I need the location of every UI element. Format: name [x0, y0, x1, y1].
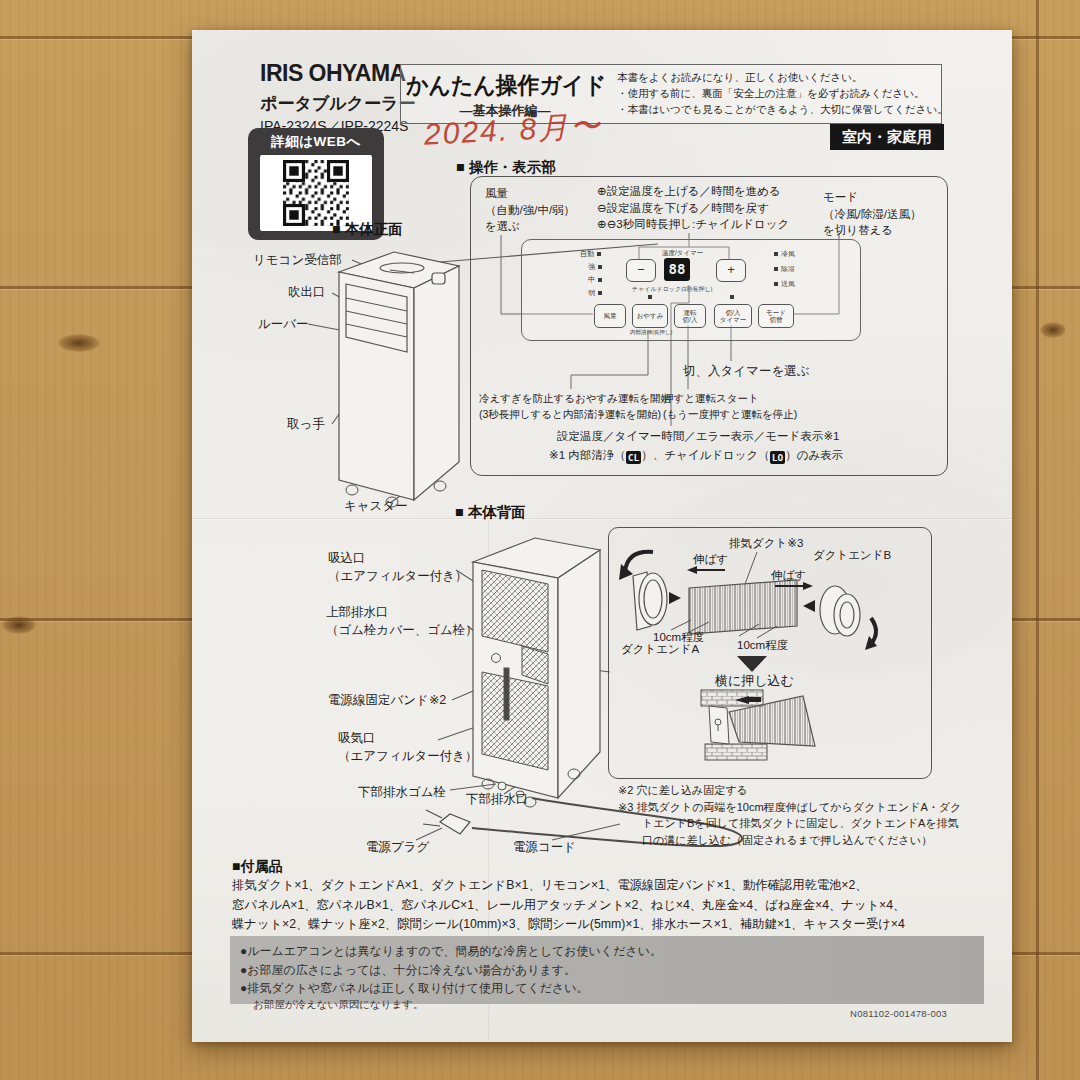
label-exhaust-duct: 排気ダクト※3: [729, 536, 803, 551]
accessories-section: ■付属品 排気ダクト×1、ダクトエンドA×1、ダクトエンドB×1、リモコン×1、…: [232, 858, 992, 935]
label-bottom-plug: 下部排水ゴム栓: [358, 784, 446, 802]
label-10cm-right: 10cm程度: [737, 638, 788, 653]
label-line: （ゴム栓カバー、ゴム栓）: [326, 622, 478, 640]
footnote-text: ）のみ表示: [785, 449, 843, 461]
accessories-line: 蝶ナット×2、蝶ナット座×2、隙間シール(10mm)×3、隙間シール(5mm)×…: [232, 915, 992, 935]
label-push-sideways: 横に押し込む: [715, 672, 794, 690]
indicator-label: 除湿: [781, 264, 795, 274]
document-code: N081102-001478-003: [850, 1008, 947, 1019]
temp-note-line: ⊖設定温度を下げる／時間を戻す: [597, 200, 789, 217]
caution-line: ●排気ダクトや窓パネルは正しく取り付けて使用してください。: [240, 979, 974, 998]
temp-note-line: ⊕設定温度を上げる／時間を進める: [597, 183, 789, 200]
footnote-3: ※3 排気ダクトの両端を10cm程度伸ばしてからダクトエンドA・ダクトエンドBを…: [618, 799, 962, 849]
lo-display-icon: LO: [770, 451, 785, 464]
label-remote-sensor: リモコン受信部: [253, 252, 342, 270]
indicator-dot-icon: [774, 267, 778, 271]
temperature-display: 88: [664, 258, 690, 281]
timer-button: 切/入タイマー: [714, 304, 752, 328]
label-line: （エアフィルター付き）: [328, 568, 468, 586]
mode-note-line: を切り替える: [823, 222, 921, 239]
power-note-line: 押すと運転スタート: [663, 391, 797, 407]
label-stretch-right: 伸ばす: [771, 568, 806, 583]
section-heading-back: ■ 本体背面: [455, 503, 526, 522]
wood-knot: [2, 616, 36, 634]
brand-block: IRIS OHYAMA ポータブルクーラー IPA-2324S／IPP-2224…: [260, 60, 415, 136]
footnotes-block: ※2 穴に差し込み固定する ※3 排気ダクトの両端を10cm程度伸ばしてからダク…: [618, 782, 962, 848]
qr-caption: 詳細はWEBへ: [248, 133, 384, 151]
fan-speed-note: 風量 （自動/強/中/弱） を選ぶ: [485, 185, 575, 235]
fan-note-line: を選ぶ: [485, 218, 575, 235]
indicator-label: 送風: [781, 279, 795, 289]
section-heading-front: ■ 本体正面: [332, 220, 403, 239]
label-intake: 吸気口 （エアフィルター付き）: [338, 730, 478, 765]
manual-sheet: IRIS OHYAMA ポータブルクーラー IPA-2324S／IPP-2224…: [192, 30, 1012, 1042]
label-bottom-drain: 下部排水口: [466, 791, 529, 809]
label-caster: キャスター: [344, 498, 408, 516]
label-cord-band: 電源線固定バンド※2: [328, 692, 446, 710]
wood-knot: [1040, 322, 1066, 338]
power-note-line: (もう一度押すと運転を停止): [663, 407, 797, 423]
label-power-plug: 電源プラグ: [366, 839, 429, 857]
guide-title: かんたん操作ガイド: [406, 70, 604, 101]
mode-button: モード切替: [758, 304, 794, 328]
floor-plank-joint: [1036, 0, 1039, 1080]
label-line: （エアフィルター付き）: [338, 748, 478, 766]
label-line: 上部排水口: [326, 604, 478, 622]
label-stretch-left: 伸ばす: [693, 552, 728, 567]
fan-note-line: （自動/強/中/弱）: [485, 202, 575, 219]
label-handle: 取っ手: [287, 416, 325, 434]
caution-box: ●ルームエアコンとは異なりますので、簡易的な冷房としてお使いください。 ●お部屋…: [230, 936, 984, 1004]
button-label: 切替: [759, 316, 793, 323]
timer-indicator-dot-icon: [730, 295, 734, 299]
section-heading-controls: ■ 操作・表示部: [456, 158, 556, 177]
caution-line: ●ルームエアコンとは異なりますので、簡易的な冷房としてお使いください。: [240, 942, 974, 961]
display-label: 温度/タイマー: [662, 249, 703, 258]
photo-of-manual-on-wood-floor: { "header": { "brand": "IRIS OHYAMA", "p…: [0, 0, 1080, 1080]
timer-select-note: 切、入タイマーを選ぶ: [683, 363, 809, 380]
mode-note-line: （冷風/除湿/送風）: [823, 206, 921, 223]
button-label: タイマー: [715, 316, 751, 323]
mode-note: モード （冷風/除湿/送風） を切り替える: [823, 189, 921, 239]
temp-buttons-note: ⊕設定温度を上げる／時間を進める ⊖設定温度を下げる／時間を戻す ⊕⊖3秒同時長…: [597, 183, 789, 233]
label-power-cord: 電源コード: [513, 839, 576, 857]
notice-line: ・使用する前に、裏面「安全上の注意」を必ずお読みください。: [617, 86, 948, 102]
label-top-drain: 上部排水口 （ゴム栓カバー、ゴム栓）: [326, 604, 478, 639]
indicator-dot-icon: [774, 252, 778, 256]
label-air-outlet: 吹出口: [288, 284, 326, 302]
label-duct-end-b: ダクトエンドB: [813, 548, 891, 563]
label-duct-end-a: ダクトエンドA: [621, 642, 699, 657]
brand-logo: IRIS OHYAMA: [260, 60, 415, 87]
duct-assembly-box: 排気ダクト※3 ダクトエンドB 伸ばす 伸ばす 10cm程度 10cm程度 ダク…: [608, 527, 932, 779]
indoor-use-badge: 室内・家庭用: [830, 124, 944, 150]
button-label: モード: [759, 309, 793, 316]
temp-note-line: ⊕⊖3秒同時長押し:チャイルドロック: [597, 216, 789, 233]
power-button: 運転切/入: [674, 304, 706, 328]
button-label: 切/入: [715, 309, 751, 316]
mode-indicator-dehumidify: 除湿: [774, 264, 795, 274]
label-line: 吸込口: [328, 550, 468, 568]
indicator-label: 冷風: [781, 249, 795, 259]
button-label: 運転: [675, 309, 705, 316]
indicator-dot-icon: [774, 282, 778, 286]
qr-code-icon: [283, 160, 349, 226]
notice-line: 本書をよくお読みになり、正しくお使いください。: [617, 70, 948, 86]
label-louver: ルーバー: [258, 316, 309, 334]
accessories-line: 排気ダクト×1、ダクトエンドA×1、ダクトエンドB×1、リモコン×1、電源線固定…: [232, 876, 992, 896]
button-label: 切/入: [675, 316, 705, 323]
product-name: ポータブルクーラー: [260, 92, 415, 115]
mode-indicator-cool: 冷風: [774, 249, 795, 259]
label-line: 吸気口: [338, 730, 478, 748]
accessories-line: 窓パネルA×1、窓パネルB×1、窓パネルC×1、レール用アタッチメント×2、ねじ…: [232, 896, 992, 916]
usage-notices: 本書をよくお読みになり、正しくお使いください。 ・使用する前に、裏面「安全上の注…: [609, 65, 954, 123]
mode-indicator-fan: 送風: [774, 279, 795, 289]
wood-knot: [58, 334, 100, 352]
handwritten-date: 2024. 8月〜: [423, 105, 603, 155]
power-function-note: 押すと運転スタート (もう一度押すと運転を停止): [663, 391, 797, 423]
accessories-heading: ■付属品: [232, 858, 992, 876]
footnote-2: ※2 穴に差し込み固定する: [618, 782, 962, 799]
plus-button: +: [716, 259, 746, 282]
notice-line: ・本書はいつでも見ることができるよう、大切に保管してください。: [617, 102, 948, 118]
fan-note-line: 風量: [485, 185, 575, 202]
mode-note-line: モード: [823, 189, 921, 206]
label-inlet: 吸込口 （エアフィルター付き）: [328, 550, 468, 585]
caution-line: ●お部屋の広さによっては、十分に冷えない場合があります。: [240, 961, 974, 980]
